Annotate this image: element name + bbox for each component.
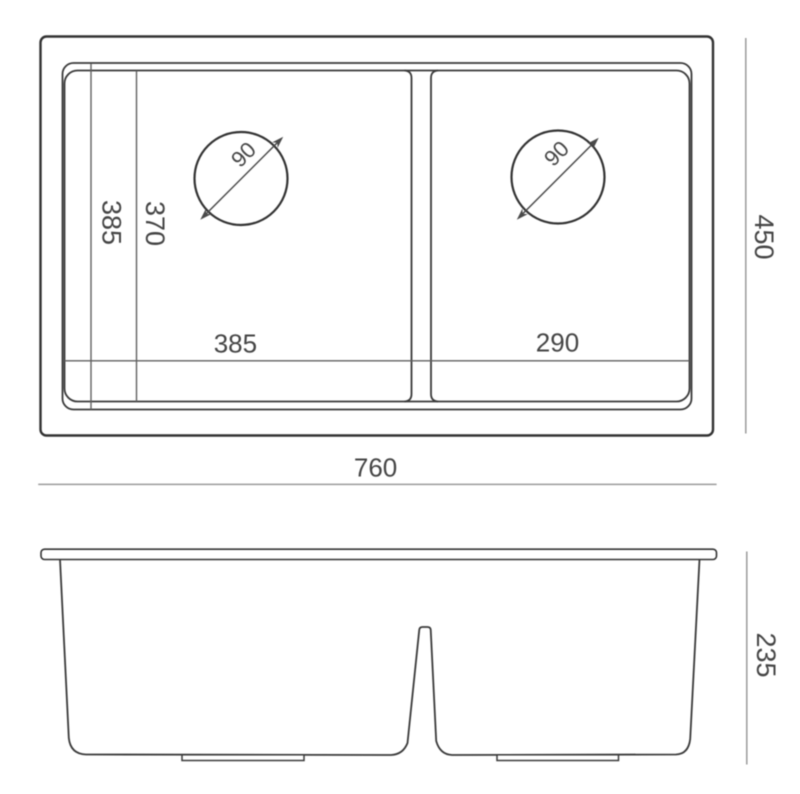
svg-text:370: 370 (140, 201, 170, 246)
svg-text:90: 90 (226, 137, 261, 172)
svg-text:385: 385 (214, 329, 257, 359)
svg-text:235: 235 (751, 632, 781, 677)
svg-text:290: 290 (536, 328, 579, 358)
svg-text:385: 385 (96, 200, 126, 245)
svg-text:450: 450 (749, 214, 779, 259)
svg-text:90: 90 (539, 136, 574, 171)
svg-text:760: 760 (354, 453, 397, 483)
